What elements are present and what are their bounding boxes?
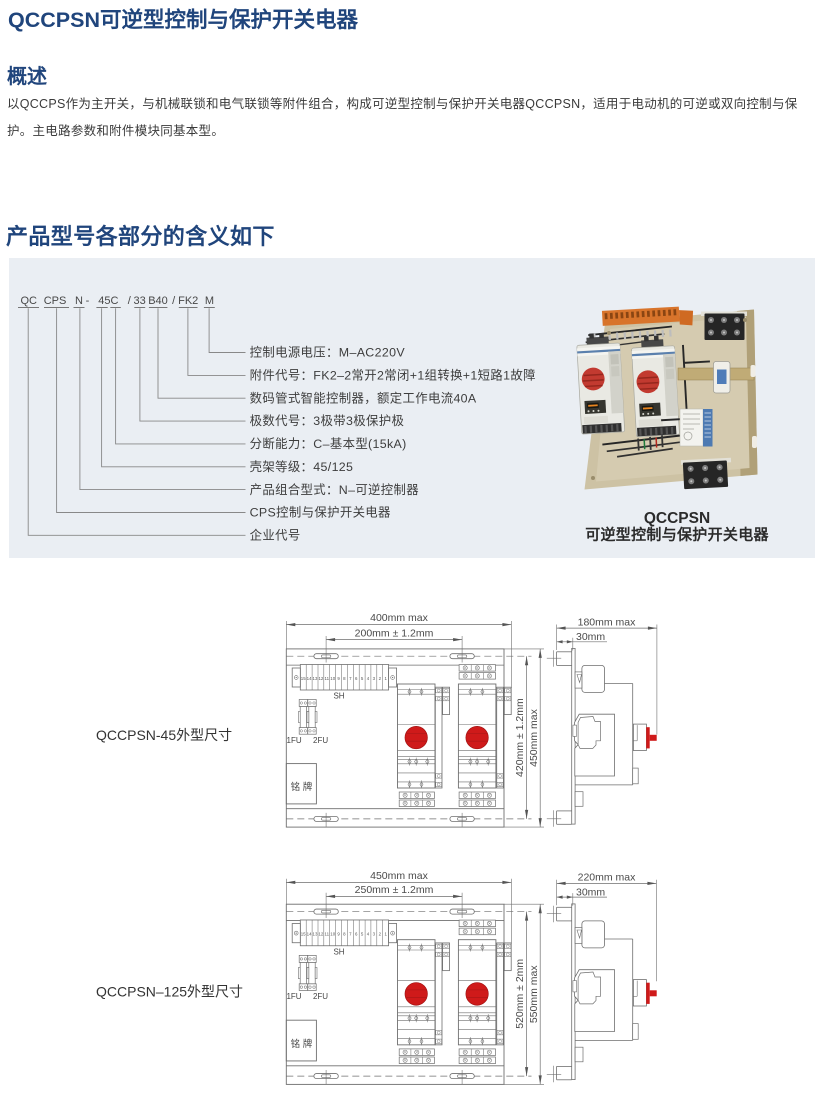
svg-text:CPS: CPS xyxy=(44,295,67,307)
svg-text:220mm max: 220mm max xyxy=(578,872,637,884)
svg-text:/: / xyxy=(128,295,132,307)
svg-text:30mm: 30mm xyxy=(576,631,605,643)
svg-text:QC: QC xyxy=(20,295,37,307)
svg-text:520mm ± 2mm: 520mm ± 2mm xyxy=(514,959,526,1029)
svg-text:12: 12 xyxy=(318,676,323,681)
svg-text:420mm ± 1.2mm: 420mm ± 1.2mm xyxy=(514,698,526,777)
svg-text:15: 15 xyxy=(301,676,306,681)
svg-text:SH: SH xyxy=(333,692,344,701)
svg-text:33: 33 xyxy=(133,295,145,307)
svg-text:30mm: 30mm xyxy=(576,887,605,899)
svg-text:控制电源电压：M–AC220V: 控制电源电压：M–AC220V xyxy=(250,346,406,360)
svg-text:企业代号: 企业代号 xyxy=(250,528,301,543)
svg-text:45C: 45C xyxy=(98,295,118,307)
svg-text:B40: B40 xyxy=(148,295,168,307)
svg-text:QCCPSN: QCCPSN xyxy=(644,510,710,527)
svg-text:2FU: 2FU xyxy=(313,736,328,745)
svg-text:400mm max: 400mm max xyxy=(370,612,429,624)
svg-text:QCCPSN-45外型尺寸: QCCPSN-45外型尺寸 xyxy=(96,727,232,743)
svg-text:FK2: FK2 xyxy=(178,295,198,307)
svg-text:QCCPSN–125外型尺寸: QCCPSN–125外型尺寸 xyxy=(96,983,243,999)
svg-text:壳架等级：45/125: 壳架等级：45/125 xyxy=(250,459,354,474)
svg-text:450mm max: 450mm max xyxy=(370,870,429,882)
svg-text:铭 牌: 铭 牌 xyxy=(291,781,313,793)
svg-text:N: N xyxy=(75,295,83,307)
svg-text:250mm ± 1.2mm: 250mm ± 1.2mm xyxy=(355,884,434,896)
svg-text:11: 11 xyxy=(325,676,330,681)
svg-text:550mm max: 550mm max xyxy=(528,965,540,1024)
svg-text:/: / xyxy=(172,295,176,307)
svg-text:附件代号：FK2–2常开2常闭+1组转换+1短路1故障: 附件代号：FK2–2常开2常闭+1组转换+1短路1故障 xyxy=(250,368,536,383)
svg-text:10: 10 xyxy=(330,676,335,681)
svg-text:分断能力：C–基本型(15kA): 分断能力：C–基本型(15kA) xyxy=(250,436,407,451)
svg-text:数码管式智能控制器，额定工作电流40A: 数码管式智能控制器，额定工作电流40A xyxy=(250,390,477,405)
svg-text:CPS控制与保护开关电器: CPS控制与保护开关电器 xyxy=(250,506,391,520)
svg-text:M: M xyxy=(205,295,214,307)
svg-text:极数代号：3极带3极保护极: 极数代号：3极带3极保护极 xyxy=(250,413,405,428)
svg-text:200mm ± 1.2mm: 200mm ± 1.2mm xyxy=(355,627,434,639)
svg-text:产品组合型式：N–可逆控制器: 产品组合型式：N–可逆控制器 xyxy=(250,482,420,497)
svg-text:可逆型控制与保护开关电器: 可逆型控制与保护开关电器 xyxy=(585,526,769,544)
svg-text:1FU: 1FU xyxy=(287,736,302,745)
svg-text:13: 13 xyxy=(313,676,318,681)
svg-text:180mm max: 180mm max xyxy=(578,616,637,628)
svg-text:-: - xyxy=(86,295,90,307)
svg-text:450mm max: 450mm max xyxy=(528,708,540,767)
svg-text:14: 14 xyxy=(307,676,312,681)
